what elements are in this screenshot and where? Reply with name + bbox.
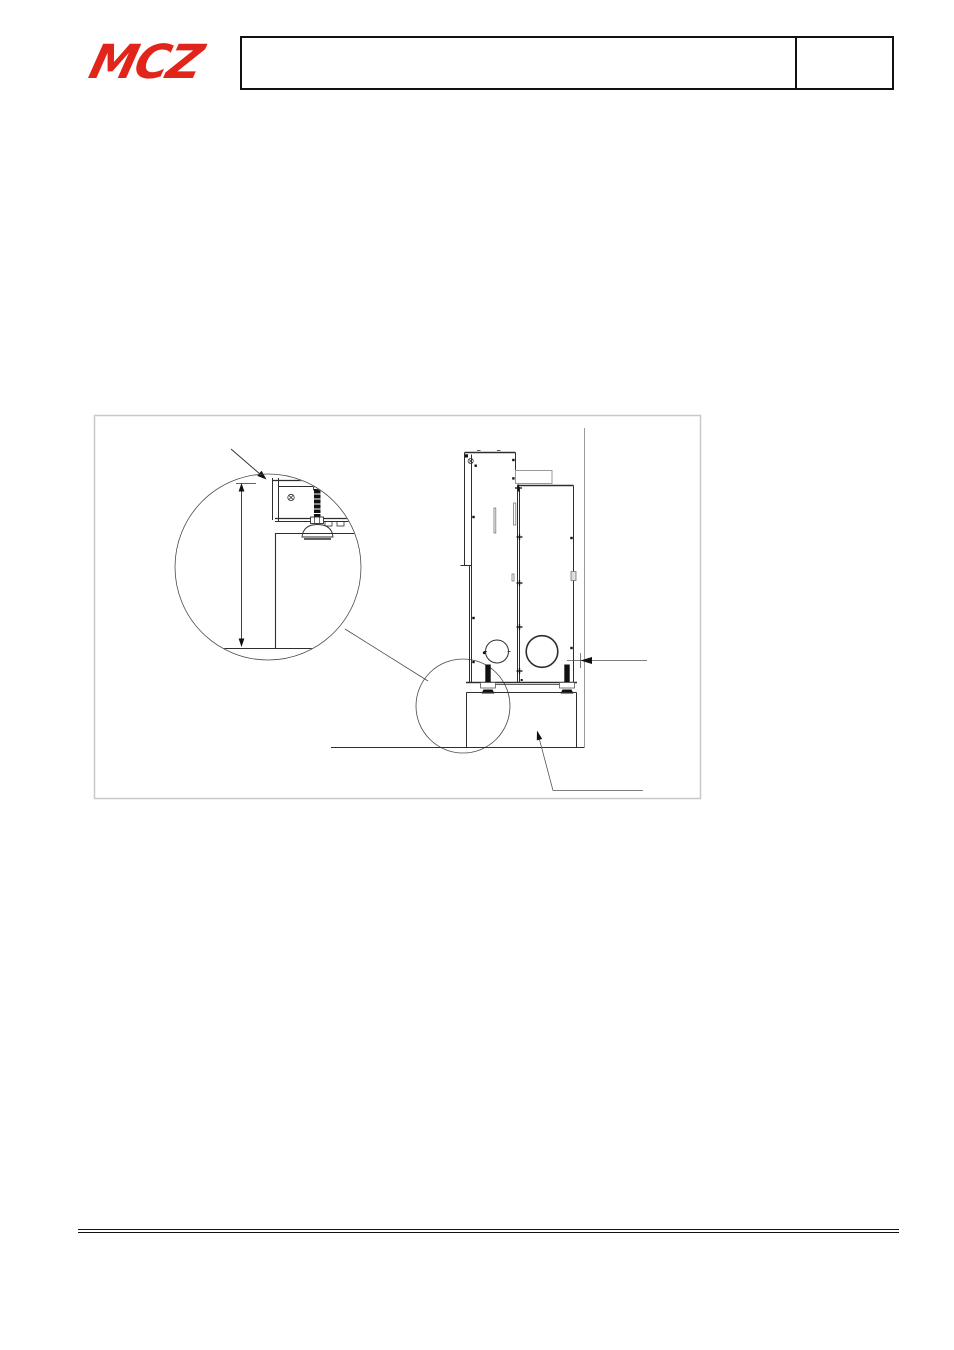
clearance-arrowhead-icon xyxy=(581,657,593,664)
document-page: MCZ xyxy=(0,0,954,1350)
leader-arrowhead-icon xyxy=(257,471,266,480)
side-latch xyxy=(571,572,576,581)
footer-rule xyxy=(78,1229,899,1233)
smoke-outlet-circle xyxy=(526,636,558,668)
adjustable-foot-detail xyxy=(302,487,333,539)
clearance-arrow xyxy=(567,653,647,668)
dimension-arrow-down-icon xyxy=(239,639,245,648)
air-intake-circle xyxy=(483,640,511,663)
height-dimension-line xyxy=(236,483,256,647)
base-leader-arrow xyxy=(537,731,643,791)
technical-figure xyxy=(0,0,954,1350)
levelling-feet xyxy=(481,665,575,694)
pedestal-base xyxy=(331,693,585,748)
base-arrowhead-icon xyxy=(537,731,542,741)
detail-connector-line xyxy=(345,629,428,681)
detail-leader-line xyxy=(231,449,267,480)
screw-symbol-top-icon xyxy=(468,458,473,463)
detail-circle-large xyxy=(175,474,376,660)
detail-circle-small xyxy=(416,659,510,753)
figure-frame xyxy=(95,416,701,799)
dimension-arrow-up-icon xyxy=(239,483,245,492)
top-step-box xyxy=(516,471,553,484)
stove-side-view xyxy=(461,451,578,694)
screw-symbol-icon xyxy=(288,494,294,500)
